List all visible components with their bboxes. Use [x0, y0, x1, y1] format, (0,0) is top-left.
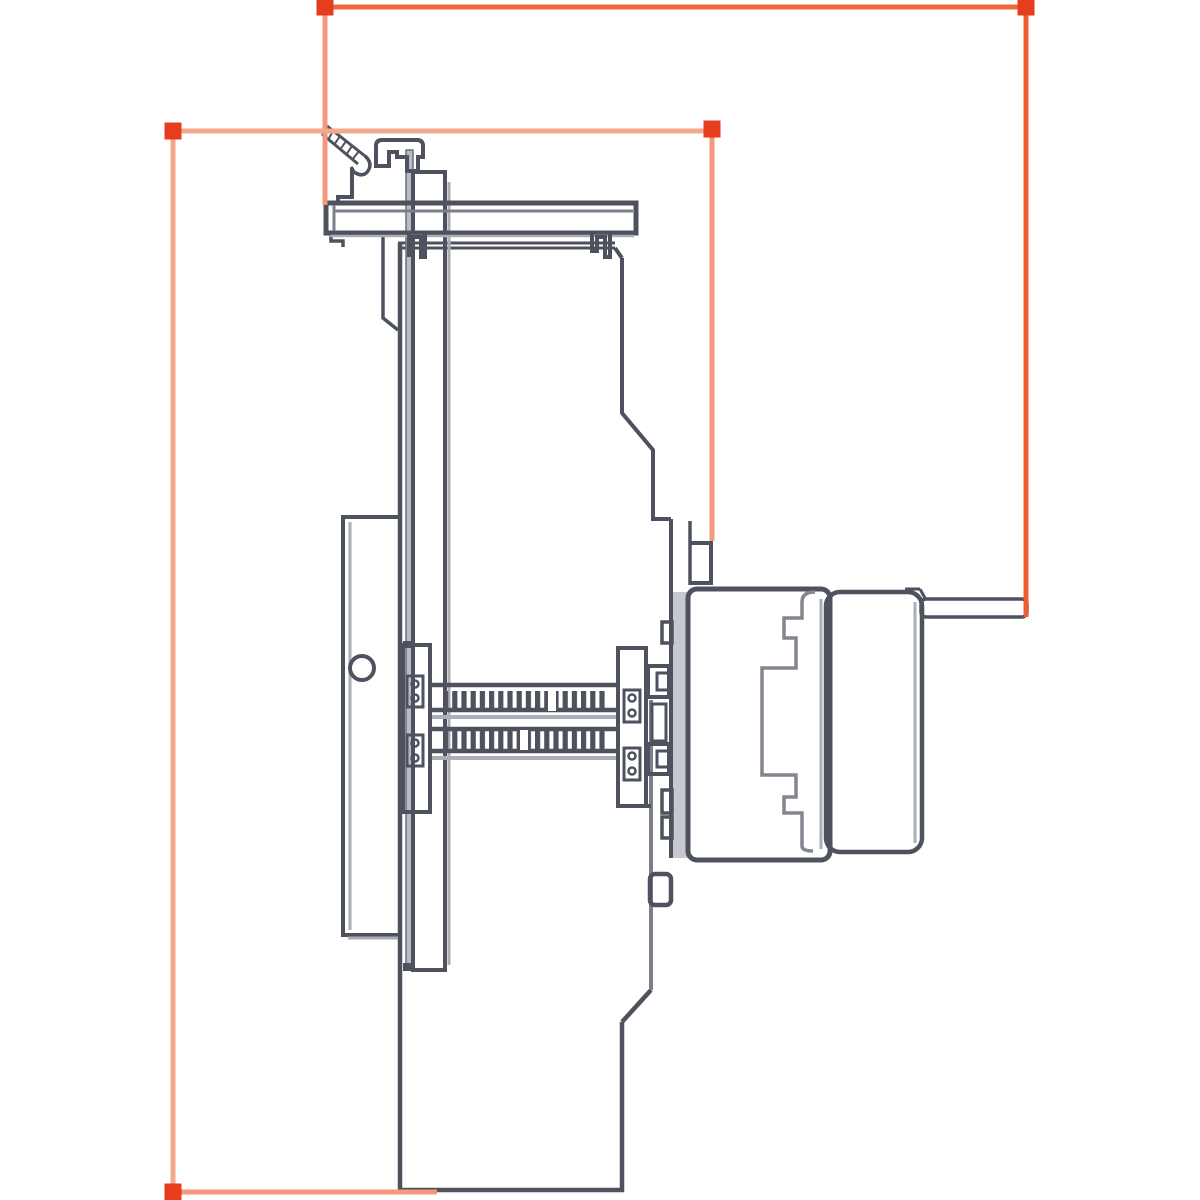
flange-step	[690, 543, 711, 583]
handle-mid-right[interactable]	[704, 121, 721, 138]
sensor-boss	[650, 874, 671, 905]
handle-bottom-left[interactable]	[165, 1184, 182, 1200]
bar-clip-left	[409, 233, 425, 257]
gear-profile	[762, 592, 815, 851]
side-plate	[343, 517, 400, 935]
flange-tab	[662, 790, 672, 813]
latch-knob	[376, 140, 423, 171]
back-plate	[413, 172, 445, 970]
gearbox-housing	[688, 589, 830, 860]
flange-tab	[662, 817, 672, 838]
motor-can	[826, 592, 922, 852]
terminal-tab	[921, 599, 1027, 617]
technical-drawing	[0, 0, 1200, 1200]
mounting-bracket	[322, 126, 636, 257]
flange-tab	[662, 622, 672, 643]
handle-mid-left[interactable]	[165, 123, 182, 140]
handle-top-left[interactable]	[317, 0, 334, 16]
dimension-annotations	[165, 0, 1035, 1200]
lead-screw-upper	[443, 691, 608, 711]
motor-assembly	[662, 519, 1027, 860]
handle-top-right[interactable]	[1018, 0, 1035, 16]
bracket-profile	[338, 168, 352, 203]
mounting-bar	[326, 203, 636, 233]
plates	[343, 150, 449, 971]
pivot-hole	[350, 656, 374, 680]
annotation-canvas	[0, 0, 1200, 1200]
